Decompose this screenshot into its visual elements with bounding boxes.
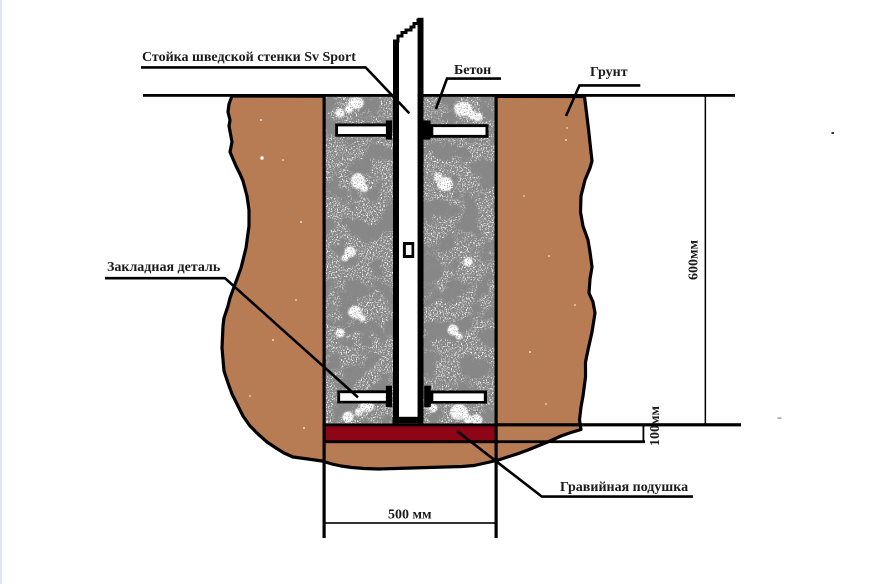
svg-text:500 мм: 500 мм — [388, 508, 432, 523]
svg-text:100мм: 100мм — [648, 405, 663, 446]
svg-text:Бетон: Бетон — [454, 63, 491, 78]
svg-text:Закладная деталь: Закладная деталь — [107, 260, 221, 275]
svg-text:600мм: 600мм — [687, 239, 702, 280]
svg-text:Грунт: Грунт — [590, 65, 628, 80]
svg-text:Гравийная подушка: Гравийная подушка — [560, 480, 688, 495]
svg-text:Стойка шведской стенки Sv Spor: Стойка шведской стенки Sv Sport — [142, 50, 356, 65]
